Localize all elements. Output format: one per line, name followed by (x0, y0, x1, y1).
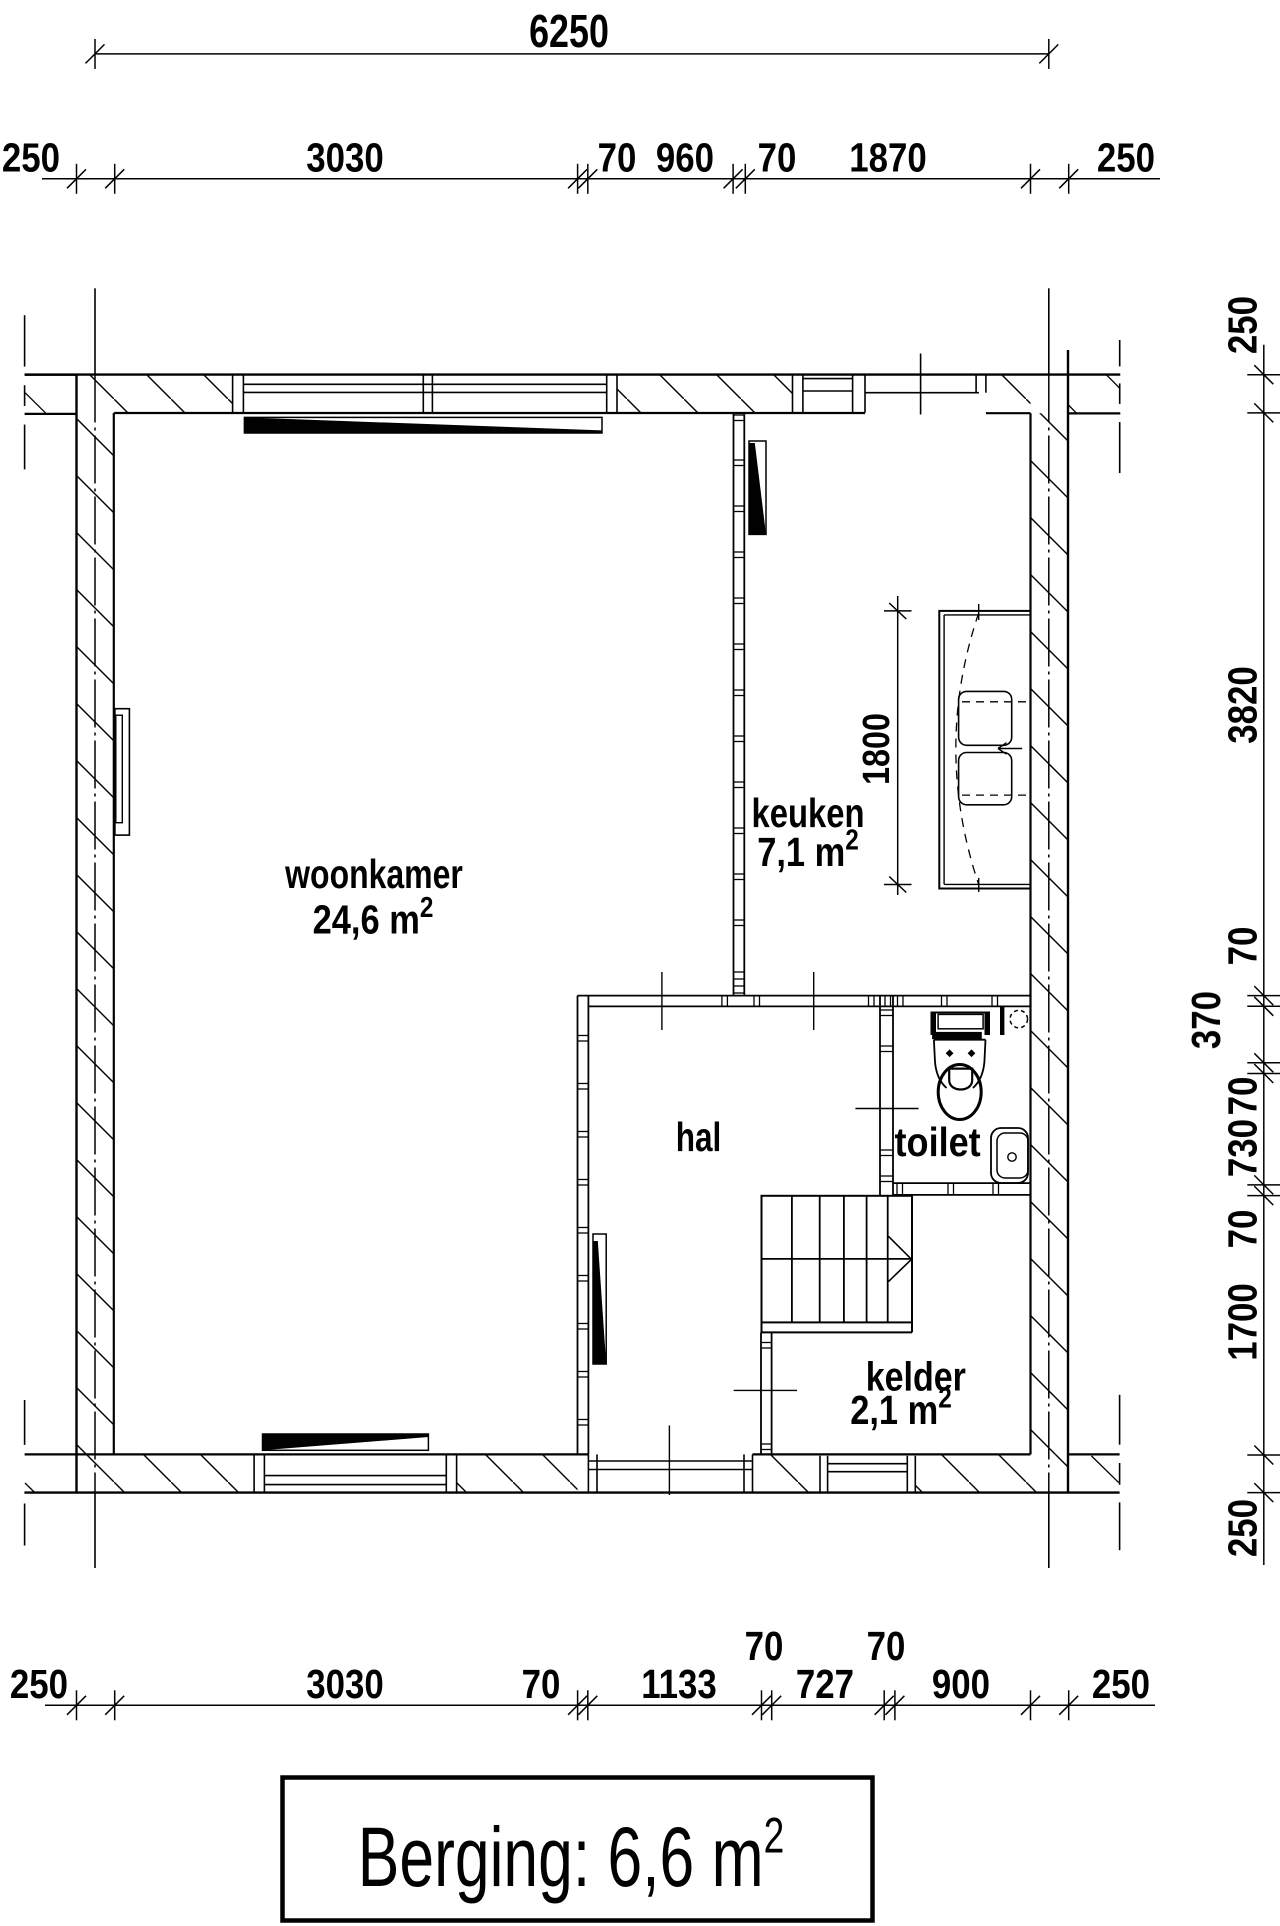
svg-text:250: 250 (1092, 1662, 1150, 1707)
svg-text:3030: 3030 (306, 136, 383, 181)
svg-text:toilet: toilet (895, 1120, 981, 1166)
svg-text:960: 960 (656, 136, 714, 181)
svg-text:24,6 m2: 24,6 m2 (313, 891, 434, 943)
svg-text:1133: 1133 (641, 1662, 717, 1707)
svg-text:250: 250 (1221, 296, 1266, 354)
svg-text:730: 730 (1221, 1119, 1266, 1177)
svg-text:2,1 m2: 2,1 m2 (850, 1382, 952, 1434)
svg-text:70: 70 (1221, 1210, 1266, 1249)
svg-text:70: 70 (745, 1624, 784, 1669)
svg-text:1870: 1870 (849, 136, 926, 181)
svg-text:1800: 1800 (856, 713, 898, 785)
svg-text:250: 250 (2, 136, 60, 181)
svg-text:1700: 1700 (1221, 1283, 1266, 1360)
svg-text:70: 70 (598, 136, 637, 181)
svg-text:6250: 6250 (529, 6, 609, 57)
svg-text:70: 70 (1221, 1077, 1266, 1116)
svg-text:7,1 m2: 7,1 m2 (757, 824, 859, 876)
svg-text:3820: 3820 (1221, 666, 1266, 743)
svg-text:70: 70 (867, 1624, 906, 1669)
svg-text:hal: hal (676, 1114, 722, 1160)
svg-text:Berging: 6,6 m2: Berging: 6,6 m2 (358, 1808, 784, 1904)
svg-text:370: 370 (1184, 991, 1229, 1049)
svg-text:250: 250 (1221, 1499, 1266, 1557)
svg-text:250: 250 (1097, 136, 1155, 181)
svg-text:727: 727 (796, 1662, 854, 1707)
svg-text:woonkamer: woonkamer (284, 851, 463, 897)
svg-text:70: 70 (1221, 927, 1266, 966)
svg-text:3030: 3030 (306, 1662, 383, 1707)
svg-text:900: 900 (932, 1662, 990, 1707)
svg-text:70: 70 (522, 1662, 561, 1707)
svg-text:250: 250 (10, 1662, 68, 1707)
svg-text:70: 70 (758, 136, 797, 181)
